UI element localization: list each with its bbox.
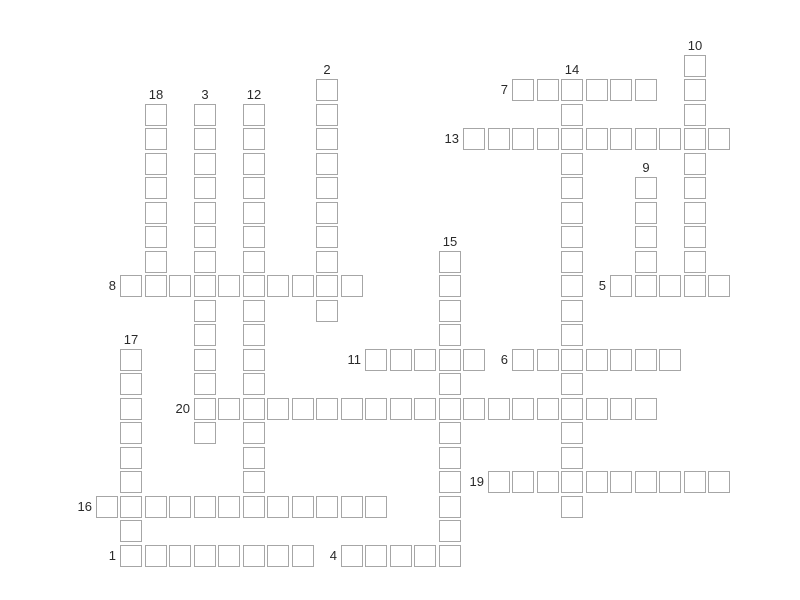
crossword-cell[interactable] [586, 471, 608, 493]
crossword-cell[interactable] [488, 471, 510, 493]
crossword-cell[interactable] [635, 226, 657, 248]
clue-number-18: 18 [145, 88, 167, 101]
crossword-cell[interactable] [316, 226, 338, 248]
crossword-cell[interactable] [120, 275, 142, 297]
crossword-cell[interactable] [341, 545, 363, 567]
clue-number-10: 10 [684, 39, 706, 52]
crossword-cell[interactable] [243, 422, 265, 444]
crossword-cell[interactable] [635, 128, 657, 150]
crossword-cell[interactable] [414, 545, 436, 567]
crossword-cell[interactable] [586, 128, 608, 150]
crossword-cell[interactable] [610, 471, 632, 493]
crossword-cell[interactable] [243, 300, 265, 322]
crossword-cell[interactable] [635, 349, 657, 371]
clue-number-15: 15 [439, 235, 461, 248]
crossword-cell[interactable] [439, 447, 461, 469]
crossword-cell[interactable] [194, 300, 216, 322]
crossword-cell[interactable] [463, 398, 485, 420]
crossword-cell[interactable] [561, 226, 583, 248]
crossword-cell[interactable] [561, 373, 583, 395]
crossword-cell[interactable] [218, 496, 240, 518]
crossword-cell[interactable] [243, 324, 265, 346]
crossword-cell[interactable] [341, 496, 363, 518]
crossword-cell[interactable] [537, 79, 559, 101]
crossword-cell[interactable] [194, 177, 216, 199]
crossword-cell[interactable] [243, 153, 265, 175]
crossword-cell[interactable] [390, 398, 412, 420]
crossword-cell[interactable] [194, 275, 216, 297]
crossword-cell[interactable] [708, 128, 730, 150]
crossword-cell[interactable] [316, 104, 338, 126]
crossword-cell[interactable] [365, 398, 387, 420]
crossword-cell[interactable] [120, 349, 142, 371]
crossword-cell[interactable] [561, 275, 583, 297]
crossword-cell[interactable] [145, 128, 167, 150]
crossword-cell[interactable] [488, 398, 510, 420]
clue-number-19: 19 [444, 475, 484, 488]
crossword-cell[interactable] [316, 300, 338, 322]
crossword-cell[interactable] [561, 496, 583, 518]
crossword-cell[interactable] [561, 471, 583, 493]
crossword-cell[interactable] [243, 202, 265, 224]
crossword-cell[interactable] [243, 447, 265, 469]
crossword-cell[interactable] [194, 324, 216, 346]
crossword-cell[interactable] [145, 104, 167, 126]
crossword-cell[interactable] [267, 545, 289, 567]
crossword-cell[interactable] [635, 275, 657, 297]
crossword-cell[interactable] [169, 275, 191, 297]
crossword-cell[interactable] [341, 398, 363, 420]
crossword-cell[interactable] [120, 422, 142, 444]
crossword-cell[interactable] [439, 251, 461, 273]
crossword-cell[interactable] [243, 275, 265, 297]
crossword-cell[interactable] [243, 496, 265, 518]
crossword-cell[interactable] [316, 202, 338, 224]
crossword-cell[interactable] [561, 202, 583, 224]
crossword-cell[interactable] [145, 226, 167, 248]
clue-number-4: 4 [297, 549, 337, 562]
crossword-cell[interactable] [96, 496, 118, 518]
crossword-cell[interactable] [586, 79, 608, 101]
crossword-cell[interactable] [194, 251, 216, 273]
crossword-cell[interactable] [120, 496, 142, 518]
crossword-cell[interactable] [684, 251, 706, 273]
clue-number-9: 9 [635, 161, 657, 174]
crossword-cell[interactable] [218, 275, 240, 297]
crossword-cell[interactable] [243, 104, 265, 126]
crossword-cell[interactable] [414, 398, 436, 420]
crossword-cell[interactable] [194, 398, 216, 420]
crossword-cell[interactable] [243, 251, 265, 273]
crossword-cell[interactable] [267, 275, 289, 297]
crossword-grid: 1234567891011121314151617181920 [0, 0, 800, 600]
crossword-cell[interactable] [243, 545, 265, 567]
crossword-cell[interactable] [684, 471, 706, 493]
crossword-cell[interactable] [659, 128, 681, 150]
crossword-cell[interactable] [659, 275, 681, 297]
crossword-cell[interactable] [439, 545, 461, 567]
clue-number-20: 20 [150, 402, 190, 415]
crossword-cell[interactable] [708, 471, 730, 493]
crossword-cell[interactable] [561, 177, 583, 199]
crossword-cell[interactable] [635, 251, 657, 273]
crossword-cell[interactable] [512, 128, 534, 150]
crossword-cell[interactable] [512, 398, 534, 420]
crossword-cell[interactable] [292, 275, 314, 297]
crossword-cell[interactable] [218, 545, 240, 567]
crossword-cell[interactable] [439, 520, 461, 542]
clue-number-7: 7 [468, 83, 508, 96]
crossword-cell[interactable] [243, 471, 265, 493]
clue-number-12: 12 [243, 88, 265, 101]
clue-number-14: 14 [561, 63, 583, 76]
crossword-cell[interactable] [561, 79, 583, 101]
crossword-cell[interactable] [561, 251, 583, 273]
crossword-cell[interactable] [586, 349, 608, 371]
crossword-cell[interactable] [292, 398, 314, 420]
crossword-cell[interactable] [439, 398, 461, 420]
crossword-cell[interactable] [414, 349, 436, 371]
crossword-cell[interactable] [684, 226, 706, 248]
crossword-cell[interactable] [439, 496, 461, 518]
crossword-cell[interactable] [463, 128, 485, 150]
crossword-cell[interactable] [439, 275, 461, 297]
crossword-cell[interactable] [561, 324, 583, 346]
crossword-cell[interactable] [635, 398, 657, 420]
crossword-cell[interactable] [684, 275, 706, 297]
crossword-cell[interactable] [463, 349, 485, 371]
crossword-cell[interactable] [169, 545, 191, 567]
clue-number-17: 17 [120, 333, 142, 346]
crossword-cell[interactable] [512, 349, 534, 371]
crossword-cell[interactable] [243, 349, 265, 371]
clue-number-16: 16 [52, 500, 92, 513]
crossword-cell[interactable] [316, 251, 338, 273]
clue-number-11: 11 [321, 353, 361, 366]
crossword-cell[interactable] [537, 398, 559, 420]
crossword-cell[interactable] [684, 153, 706, 175]
crossword-cell[interactable] [586, 398, 608, 420]
crossword-cell[interactable] [316, 177, 338, 199]
crossword-cell[interactable] [610, 398, 632, 420]
crossword-cell[interactable] [537, 349, 559, 371]
crossword-cell[interactable] [684, 202, 706, 224]
crossword-cell[interactable] [194, 104, 216, 126]
crossword-cell[interactable] [439, 324, 461, 346]
crossword-cell[interactable] [635, 471, 657, 493]
crossword-cell[interactable] [243, 398, 265, 420]
crossword-cell[interactable] [194, 422, 216, 444]
crossword-cell[interactable] [145, 153, 167, 175]
crossword-cell[interactable] [365, 349, 387, 371]
crossword-cell[interactable] [316, 275, 338, 297]
crossword-cell[interactable] [316, 153, 338, 175]
crossword-cell[interactable] [194, 349, 216, 371]
crossword-cell[interactable] [635, 202, 657, 224]
crossword-cell[interactable] [684, 128, 706, 150]
crossword-puzzle: 1234567891011121314151617181920 [0, 0, 800, 600]
crossword-cell[interactable] [145, 496, 167, 518]
crossword-cell[interactable] [561, 447, 583, 469]
crossword-cell[interactable] [684, 79, 706, 101]
crossword-cell[interactable] [169, 496, 191, 518]
crossword-cell[interactable] [120, 398, 142, 420]
crossword-cell[interactable] [145, 177, 167, 199]
crossword-cell[interactable] [316, 496, 338, 518]
crossword-cell[interactable] [561, 153, 583, 175]
crossword-cell[interactable] [120, 545, 142, 567]
crossword-cell[interactable] [561, 128, 583, 150]
crossword-cell[interactable] [194, 496, 216, 518]
crossword-cell[interactable] [610, 349, 632, 371]
crossword-cell[interactable] [267, 398, 289, 420]
crossword-cell[interactable] [120, 520, 142, 542]
crossword-cell[interactable] [194, 153, 216, 175]
crossword-cell[interactable] [316, 79, 338, 101]
clue-number-13: 13 [419, 132, 459, 145]
crossword-cell[interactable] [659, 349, 681, 371]
crossword-cell[interactable] [292, 496, 314, 518]
crossword-cell[interactable] [390, 545, 412, 567]
crossword-cell[interactable] [243, 128, 265, 150]
crossword-cell[interactable] [145, 251, 167, 273]
crossword-cell[interactable] [635, 177, 657, 199]
crossword-cell[interactable] [365, 545, 387, 567]
crossword-cell[interactable] [488, 128, 510, 150]
crossword-cell[interactable] [365, 496, 387, 518]
clue-number-1: 1 [76, 549, 116, 562]
crossword-cell[interactable] [243, 177, 265, 199]
crossword-cell[interactable] [610, 128, 632, 150]
crossword-cell[interactable] [194, 545, 216, 567]
crossword-cell[interactable] [635, 79, 657, 101]
crossword-cell[interactable] [120, 373, 142, 395]
crossword-cell[interactable] [390, 349, 412, 371]
crossword-cell[interactable] [120, 447, 142, 469]
crossword-cell[interactable] [659, 471, 681, 493]
crossword-cell[interactable] [316, 128, 338, 150]
crossword-cell[interactable] [120, 471, 142, 493]
crossword-cell[interactable] [439, 373, 461, 395]
crossword-cell[interactable] [316, 398, 338, 420]
crossword-cell[interactable] [561, 300, 583, 322]
crossword-cell[interactable] [561, 349, 583, 371]
crossword-cell[interactable] [194, 202, 216, 224]
crossword-cell[interactable] [610, 79, 632, 101]
crossword-cell[interactable] [145, 275, 167, 297]
crossword-cell[interactable] [194, 128, 216, 150]
crossword-cell[interactable] [194, 373, 216, 395]
crossword-cell[interactable] [537, 128, 559, 150]
crossword-cell[interactable] [512, 471, 534, 493]
crossword-cell[interactable] [439, 300, 461, 322]
crossword-cell[interactable] [243, 226, 265, 248]
crossword-cell[interactable] [145, 545, 167, 567]
crossword-cell[interactable] [537, 471, 559, 493]
crossword-cell[interactable] [684, 104, 706, 126]
crossword-cell[interactable] [194, 226, 216, 248]
clue-number-3: 3 [194, 88, 216, 101]
crossword-cell[interactable] [561, 422, 583, 444]
crossword-cell[interactable] [561, 104, 583, 126]
crossword-cell[interactable] [512, 79, 534, 101]
crossword-cell[interactable] [708, 275, 730, 297]
crossword-cell[interactable] [218, 398, 240, 420]
crossword-cell[interactable] [684, 55, 706, 77]
crossword-cell[interactable] [684, 177, 706, 199]
crossword-cell[interactable] [610, 275, 632, 297]
crossword-cell[interactable] [267, 496, 289, 518]
crossword-cell[interactable] [341, 275, 363, 297]
crossword-cell[interactable] [439, 422, 461, 444]
crossword-cell[interactable] [561, 398, 583, 420]
crossword-cell[interactable] [145, 202, 167, 224]
clue-number-2: 2 [316, 63, 338, 76]
crossword-cell[interactable] [243, 373, 265, 395]
clue-number-8: 8 [76, 279, 116, 292]
crossword-cell[interactable] [439, 349, 461, 371]
